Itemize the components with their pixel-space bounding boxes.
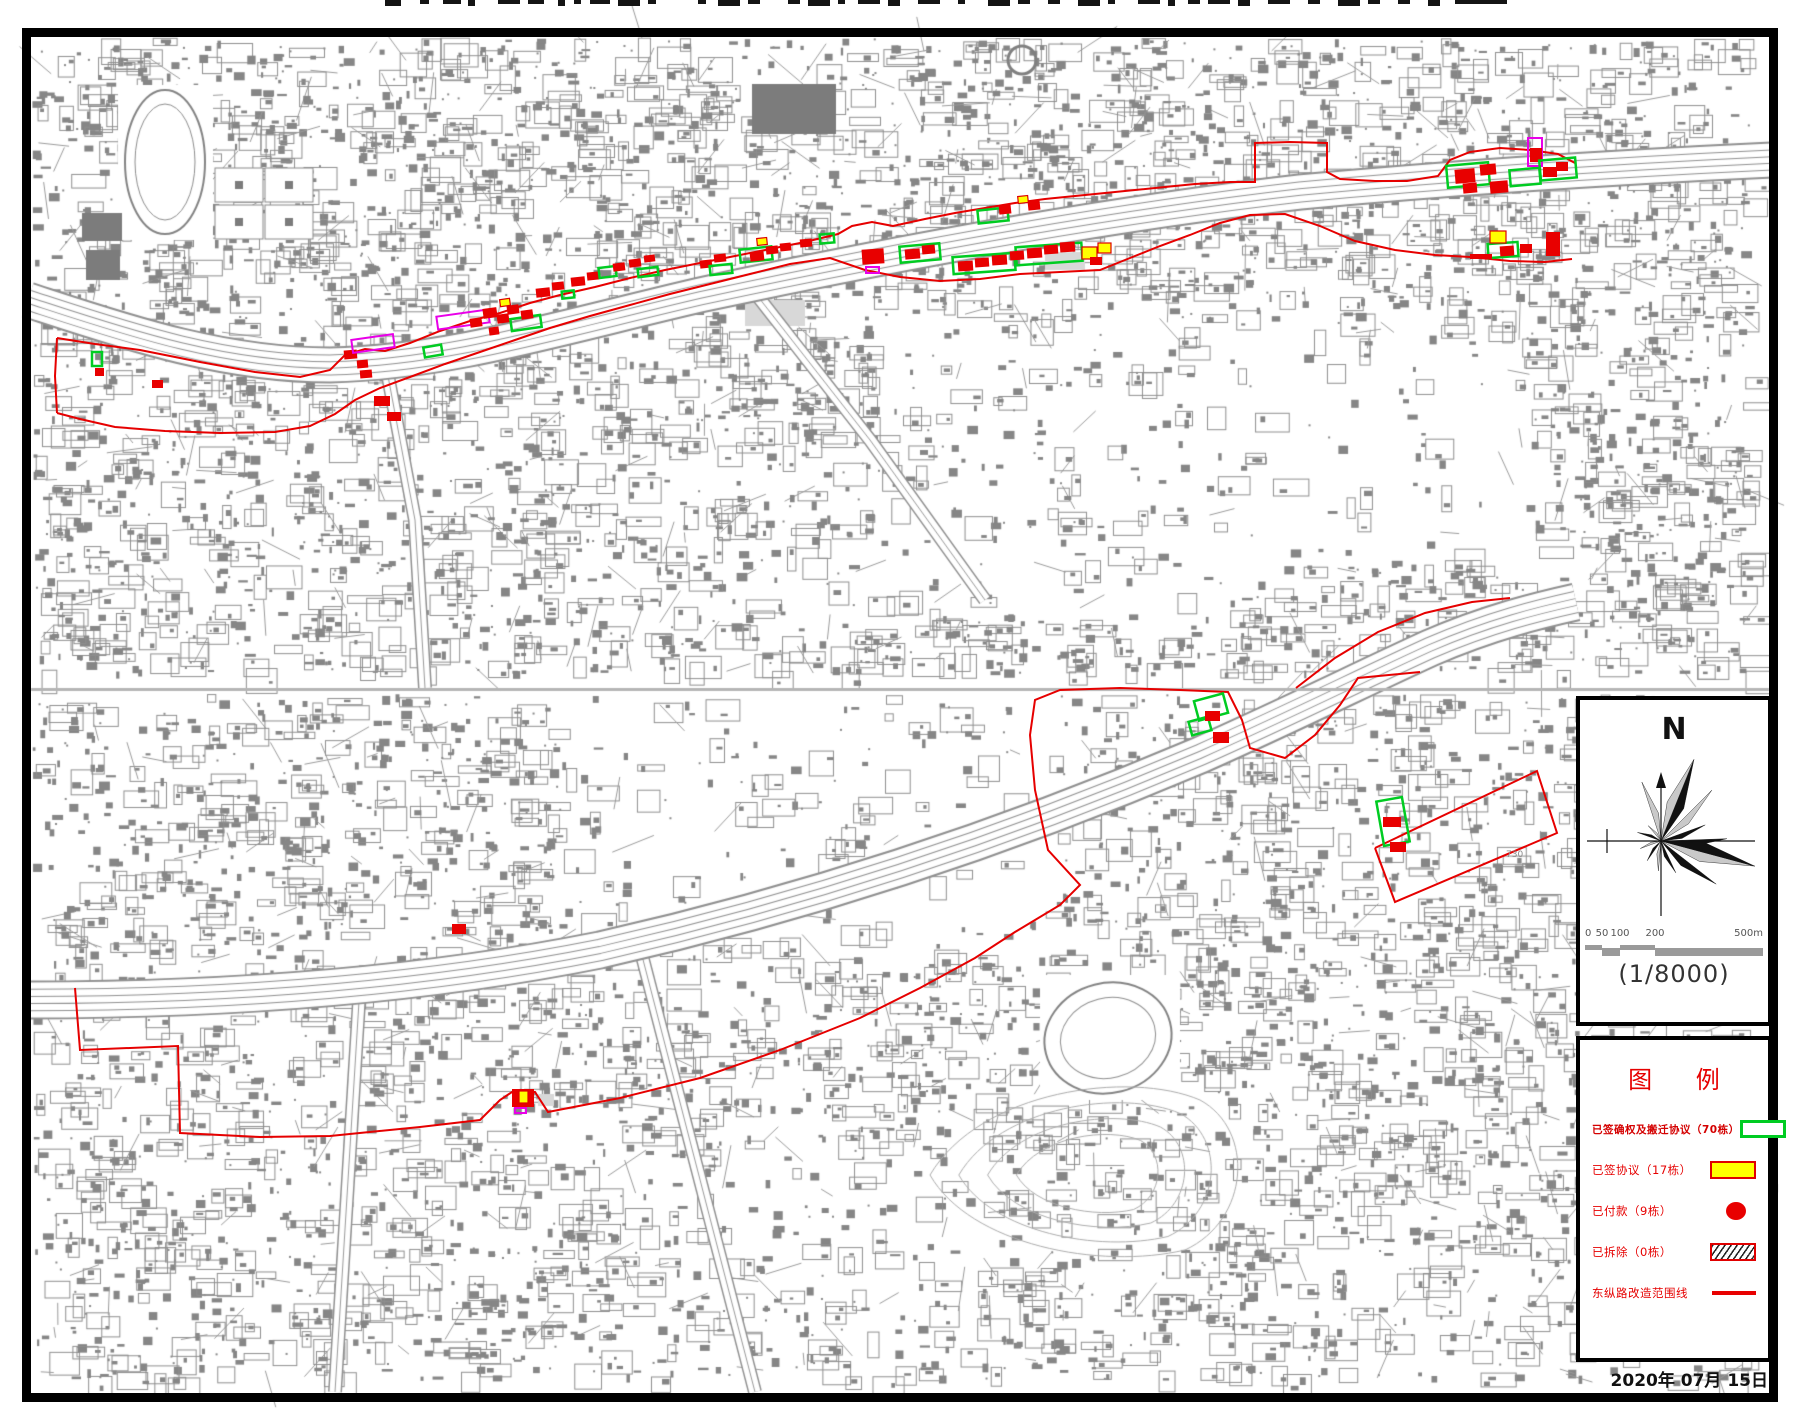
title-fragment	[1398, 0, 1410, 4]
legend-item-label: 已签确权及搬迁协议（70栋）	[1592, 1122, 1740, 1137]
scale-bar	[1585, 943, 1763, 957]
title-fragment	[748, 0, 760, 4]
title-fragment	[498, 0, 520, 4]
title-fragment	[808, 0, 830, 6]
planning-map-sheet: N 050100200500m (1/8000) 图 例 已签确权及搬迁协议（7…	[0, 0, 1800, 1428]
compass-petal	[1642, 782, 1661, 841]
legend-item-label: 已拆除（0栋）	[1592, 1244, 1672, 1260]
title-fragment	[1108, 0, 1115, 4]
title-fragment	[838, 0, 845, 4]
title-fragment	[648, 0, 656, 4]
yellow-rect-icon	[1710, 1161, 1756, 1179]
scale-tick: 50	[1596, 928, 1609, 939]
title-fragment	[385, 0, 401, 6]
scale-tick: 100	[1610, 928, 1629, 939]
title-fragment	[558, 0, 565, 6]
title-fragment	[718, 0, 740, 6]
legend-item: 已签协议（17栋）	[1580, 1161, 1768, 1179]
red-line-icon	[1712, 1291, 1756, 1295]
title-fragment	[1238, 0, 1250, 6]
legend-panel: 图 例 已签确权及搬迁协议（70栋）已签协议（17栋）已付款（9栋）已拆除（0栋…	[1576, 1036, 1772, 1362]
scale-tick: 200	[1645, 928, 1664, 939]
scale-tick: 500m	[1734, 928, 1763, 939]
legend-item-label: 已签协议（17栋）	[1592, 1162, 1692, 1178]
title-fragment	[1308, 0, 1320, 4]
legend-item: 东纵路改造范围线	[1580, 1284, 1768, 1302]
scale-ratio: (1/8000)	[1580, 960, 1768, 988]
title-fragment	[590, 0, 610, 4]
title-fragment	[443, 0, 461, 4]
title-fragment	[1455, 0, 1507, 4]
title-fragment	[1138, 0, 1160, 4]
scale-ticks: 050100200500m	[1585, 928, 1763, 940]
map-label: 730	[1506, 850, 1523, 860]
title-fragment	[1048, 0, 1060, 4]
title-fragment	[420, 0, 429, 4]
title-fragment	[1268, 0, 1290, 4]
north-label: N	[1580, 712, 1768, 747]
red-circle-icon	[1726, 1202, 1746, 1220]
title-fragment	[698, 0, 706, 4]
legend-item-label: 东纵路改造范围线	[1592, 1285, 1688, 1301]
title-fragment	[1168, 0, 1175, 6]
title-fragment	[1188, 0, 1200, 4]
title-fragment	[528, 0, 544, 4]
legend-item-label: 已付款（9栋）	[1592, 1203, 1672, 1219]
title-fragment	[958, 0, 965, 4]
map-canvas	[0, 0, 1800, 1428]
legend-item: 已付款（9栋）	[1580, 1202, 1768, 1220]
north-arrowhead-icon	[1656, 772, 1666, 788]
title-fragment	[1018, 0, 1030, 4]
title-fragment	[918, 0, 940, 4]
legend-items: 已签确权及搬迁协议（70栋）已签协议（17栋）已付款（9栋）已拆除（0栋）东纵路…	[1580, 1120, 1768, 1325]
legend-item: 已签确权及搬迁协议（70栋）	[1580, 1120, 1768, 1138]
green-outline-rect-icon	[1740, 1120, 1786, 1138]
scale-tick: 0	[1585, 928, 1591, 939]
title-fragment	[888, 0, 900, 6]
legend-item: 已拆除（0栋）	[1580, 1243, 1768, 1261]
title-fragment	[988, 0, 1010, 6]
north-scale-panel: N 050100200500m (1/8000)	[1576, 696, 1772, 1026]
title-fragment	[1368, 0, 1380, 4]
legend-title: 图 例	[1580, 1060, 1768, 1095]
title-fragment	[858, 0, 880, 4]
hatched-rect-icon	[1710, 1243, 1756, 1261]
title-fragment	[468, 0, 475, 6]
title-fragment	[1428, 0, 1440, 6]
title-fragment	[1338, 0, 1360, 6]
title-fragment	[618, 0, 640, 6]
title-fragment	[574, 0, 581, 4]
title-fragment	[1208, 0, 1230, 4]
title-fragment	[1078, 0, 1100, 6]
title-fragment	[788, 0, 800, 4]
compass-rose-icon	[1581, 746, 1767, 924]
sheet-date: 2020年 07月 15日	[1596, 1366, 1768, 1391]
